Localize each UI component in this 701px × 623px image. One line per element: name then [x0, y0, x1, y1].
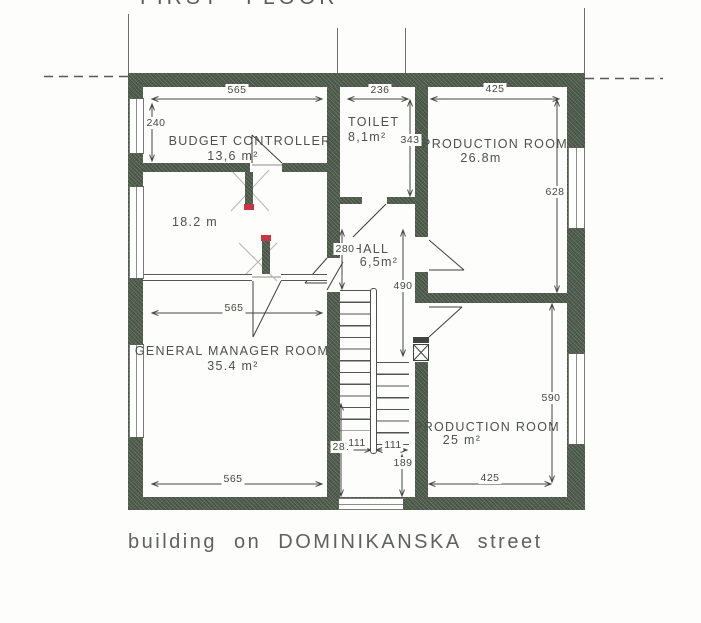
room-label-production-bottom: PRODUCTION ROOM: [414, 420, 560, 434]
window-left-2: [129, 186, 144, 279]
wall-stub-lower: [262, 241, 270, 274]
dim-hall-width: 280: [333, 243, 356, 255]
dim-mid-gm: 565: [222, 302, 245, 314]
room-area-toilet: 8,1m²: [348, 130, 386, 144]
wall-toilet-bottom-left: [340, 197, 362, 204]
dim-top-toilet: 236: [368, 84, 391, 96]
room-area-hall: 6,5m²: [360, 255, 398, 269]
wall-center-lower: [327, 292, 340, 497]
room-label-production-top: PRODUCTION ROOM: [422, 137, 568, 151]
wall-production-divider: [428, 293, 567, 303]
dim-toilet-height: 343: [398, 134, 421, 146]
stairs-flight-left: [340, 290, 371, 431]
dim-bottom-gm: 565: [221, 473, 244, 485]
scribble-x-marks: [231, 170, 277, 281]
dim-hall-height: 490: [391, 280, 414, 292]
wall-center-upper: [327, 87, 340, 258]
wall-stub-upper: [245, 172, 253, 205]
window-left-1: [129, 98, 144, 154]
floor-plan-page: FIRST FLOOR: [0, 0, 701, 623]
room-area-18: 18.2 m: [172, 215, 218, 229]
window-bottom-entry: [338, 498, 404, 510]
partition-room18-gm-right: [281, 274, 327, 281]
dim-top-production: 425: [483, 83, 506, 95]
wall-budget-bottom-right: [282, 163, 327, 172]
room-area-production-bottom: 25 m²: [443, 433, 481, 447]
room-label-general-manager: GENERAL MANAGER ROOM: [135, 344, 329, 358]
room-area-general-manager: 35.4 m²: [207, 359, 258, 373]
wall-toilet-bottom-right: [387, 197, 415, 204]
window-left-3: [129, 344, 144, 438]
dim-top-budget: 565: [225, 84, 248, 96]
dim-production-top-height: 628: [543, 186, 566, 198]
wall-top: [128, 73, 585, 87]
room-area-budget-controller: 13,6 m²: [207, 149, 258, 163]
dim-bottom-production: 425: [478, 472, 501, 484]
wall-budget-bottom-left: [143, 163, 250, 172]
dim-stair-landing: 189: [391, 457, 414, 469]
room-area-production-top: 26.8m: [460, 151, 501, 165]
dim-stair-width-right: 111: [382, 439, 403, 451]
room-label-hall: HALL: [353, 242, 389, 256]
wall-hall-right-mid: [415, 272, 428, 303]
red-marker-upper: [244, 204, 254, 210]
window-right-2: [568, 353, 585, 445]
stairs-flight-right: [377, 362, 409, 451]
dim-stair-width-left: 111: [346, 437, 367, 449]
wall-hall-right-upper: [415, 87, 428, 237]
extension-lines: [129, 8, 585, 79]
room-label-budget-controller: BUDGET CONTROLLER: [169, 134, 332, 148]
stairs-stringer: [370, 288, 377, 454]
drawing-title: FIRST FLOOR: [140, 0, 338, 10]
red-marker-lower: [261, 235, 271, 241]
shaft-fixture: [413, 337, 429, 361]
window-right-1: [568, 147, 585, 229]
drawing-title-clipped: FIRST FLOOR: [140, 0, 470, 11]
caption: building on DOMINIKANSKA street: [128, 531, 543, 554]
dim-production-bottom-height: 590: [539, 392, 562, 404]
dim-budget-height: 240: [144, 117, 167, 129]
room-label-toilet: TOILET: [348, 115, 399, 129]
partition-room18-gm-left: [143, 274, 252, 281]
